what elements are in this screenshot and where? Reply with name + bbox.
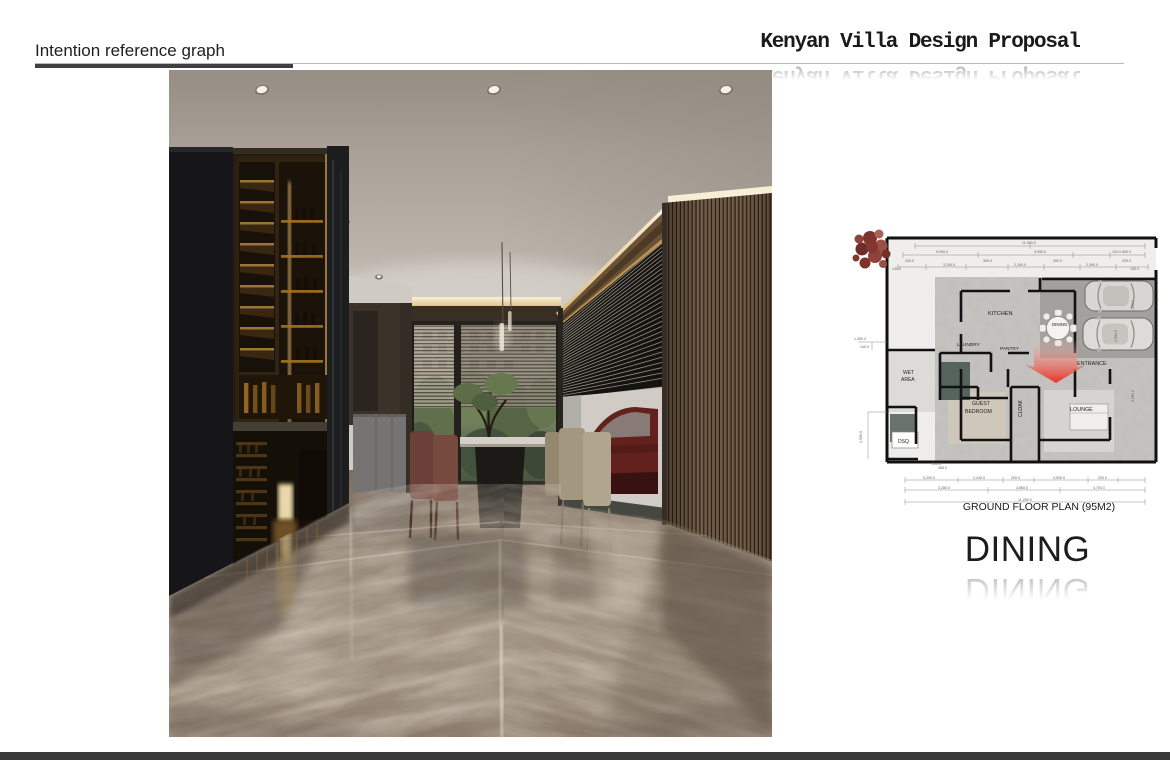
svg-text:200.3: 200.3 (932, 462, 941, 466)
svg-text:140.0: 140.0 (892, 267, 901, 271)
svg-text:240.0: 240.0 (905, 259, 914, 263)
svg-text:2,390.0: 2,390.0 (1086, 263, 1098, 267)
svg-text:PANTRY: PANTRY (1000, 346, 1020, 352)
svg-text:DSQ: DSQ (898, 439, 909, 445)
svg-text:5,990.0: 5,990.0 (1034, 250, 1046, 254)
svg-text:5,990.0: 5,990.0 (936, 250, 948, 254)
svg-text:140.0: 140.0 (860, 345, 869, 349)
svg-text:140.0: 140.0 (1130, 267, 1139, 271)
svg-text:5,300.0: 5,300.0 (923, 476, 935, 480)
svg-text:LOUNGE: LOUNGE (1070, 407, 1093, 413)
svg-text:1,490.0: 1,490.0 (854, 337, 866, 341)
svg-text:239.0: 239.0 (1122, 259, 1131, 263)
svg-text:3,190.0: 3,190.0 (943, 263, 955, 267)
svg-text:4,500.0: 4,500.0 (1053, 476, 1065, 480)
svg-text:LAUNDRY: LAUNDRY (957, 342, 981, 348)
svg-text:DINING: DINING (1052, 322, 1068, 327)
svg-text:4,700.0: 4,700.0 (1093, 486, 1105, 490)
svg-text:GUEST: GUEST (972, 401, 991, 407)
svg-text:1,590.0: 1,590.0 (859, 431, 863, 443)
svg-text:ENTRANCE: ENTRANCE (1077, 361, 1107, 367)
svg-text:368.0: 368.0 (938, 466, 947, 470)
svg-text:100.0 500.0: 100.0 500.0 (1112, 250, 1131, 254)
svg-text:390.0: 390.0 (983, 259, 992, 263)
svg-text:200.0: 200.0 (1011, 476, 1020, 480)
svg-text:200.0: 200.0 (1098, 476, 1107, 480)
svg-text:3,860.0: 3,860.0 (1016, 486, 1028, 490)
svg-text:11,090.0: 11,090.0 (1022, 241, 1036, 245)
svg-text:2,190.0: 2,190.0 (1014, 263, 1026, 267)
svg-text:3,090.0: 3,090.0 (1131, 390, 1135, 402)
svg-text:WET: WET (903, 370, 914, 376)
svg-text:BEDROOM: BEDROOM (965, 409, 992, 415)
svg-text:KITCHEN: KITCHEN (988, 311, 1013, 317)
svg-text:4,390.0: 4,390.0 (1131, 300, 1135, 312)
svg-text:2,590.0: 2,590.0 (1114, 330, 1118, 342)
svg-text:2,440.0: 2,440.0 (973, 476, 985, 480)
svg-text:390.0: 390.0 (1053, 259, 1062, 263)
svg-text:CLOAK: CLOAK (1018, 399, 1024, 417)
svg-text:3,280.0: 3,280.0 (938, 486, 950, 490)
svg-text:AREA: AREA (901, 377, 915, 383)
